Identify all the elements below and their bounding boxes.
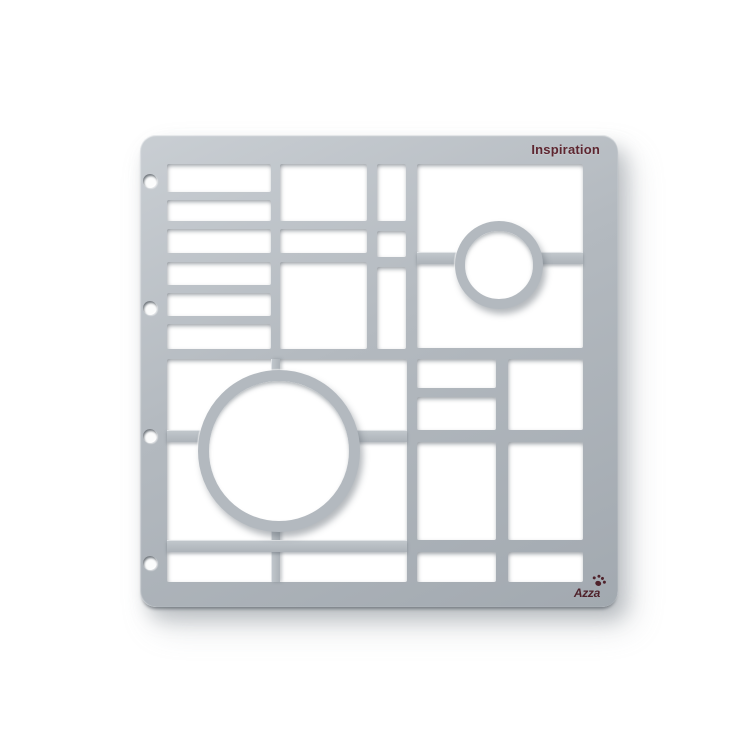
plate-bar <box>271 526 280 582</box>
circle-cutout-ring <box>455 221 543 309</box>
binder-hole <box>143 301 157 315</box>
cutout-window <box>508 359 583 430</box>
plate-bar <box>167 540 407 552</box>
paw-toe-dot <box>602 580 606 584</box>
cutout-window <box>417 552 496 582</box>
paw-pad-dot <box>595 580 602 587</box>
cutout-window <box>417 442 496 540</box>
cutout-window <box>508 552 583 582</box>
cutout-window <box>167 164 271 192</box>
circle-cutout-ring <box>198 370 360 532</box>
cutout-window <box>280 229 367 253</box>
cutout-window <box>167 200 271 221</box>
stencil-plate: Inspiration Azza <box>140 135 618 607</box>
paw-toe-dot <box>592 576 596 580</box>
product-photo-canvas: Inspiration Azza <box>0 0 750 750</box>
cutout-window <box>377 231 406 257</box>
cutout-window <box>280 164 367 221</box>
brand-logo-label: Azza <box>574 586 600 600</box>
stencil-title-label: Inspiration <box>531 142 600 157</box>
binder-hole <box>143 174 157 188</box>
cutout-window <box>167 324 271 349</box>
cutout-window <box>280 262 367 349</box>
plate-bar <box>167 430 203 442</box>
cutout-window <box>417 359 496 388</box>
cutout-window <box>167 229 271 253</box>
binder-hole <box>143 556 157 570</box>
cutout-window <box>508 442 583 540</box>
cutout-window <box>167 293 271 316</box>
cutout-window <box>167 262 271 285</box>
binder-hole <box>143 429 157 443</box>
plate-bar <box>355 430 407 442</box>
cutout-window <box>417 397 496 430</box>
cutout-window <box>377 164 406 221</box>
cutout-window <box>377 267 406 349</box>
